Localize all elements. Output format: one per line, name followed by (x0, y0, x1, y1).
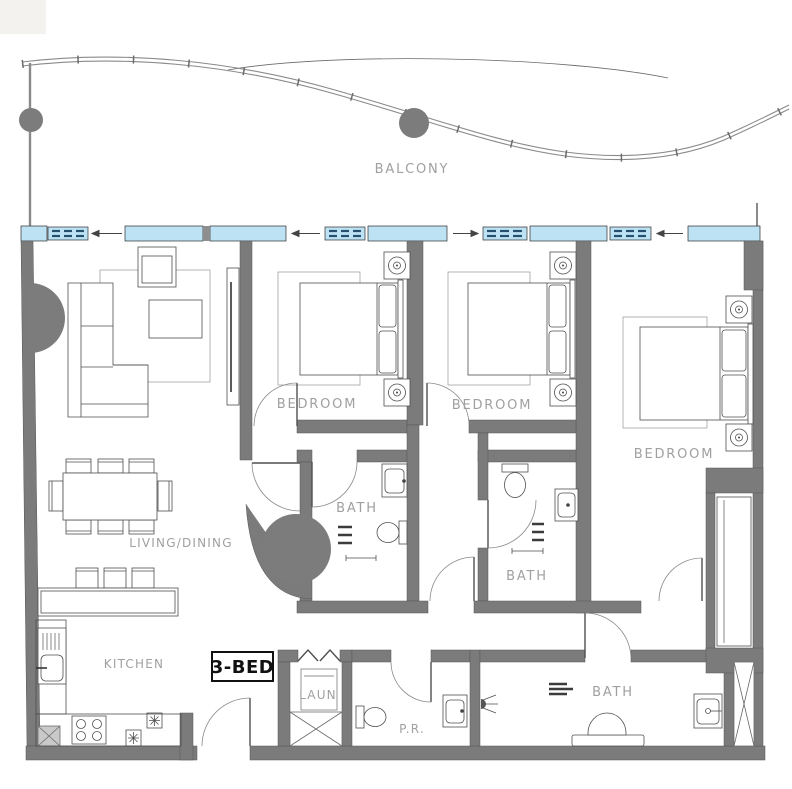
wall-bath1-east (407, 425, 419, 601)
label-bedroom2: BEDROOM (452, 398, 532, 413)
toilet (377, 521, 407, 544)
label-balcony: BALCONY (375, 162, 450, 177)
label-laundry: LAUN (299, 688, 337, 702)
wall-bath3-east (724, 662, 734, 746)
slide-arrow-right (453, 231, 478, 237)
bed (640, 327, 748, 420)
wall-pr-north (352, 650, 391, 662)
slide-arrow-left (292, 231, 320, 237)
balcony-railing-outer (22, 57, 789, 156)
dining-chair (66, 520, 91, 534)
wall-bath3-north (480, 650, 585, 662)
faucet (460, 709, 464, 713)
wall-pr-east (470, 650, 480, 746)
wall-exterior-right-chunk (744, 241, 763, 290)
balcony (19, 57, 789, 226)
label-bedroom1: BEDROOM (277, 397, 357, 412)
unit-label-text: 3-BED (211, 657, 274, 678)
dining-table (63, 473, 157, 520)
wall-bed2-south (469, 420, 576, 433)
label-bath2: BATH (506, 569, 548, 584)
door-bath2 (488, 500, 536, 548)
sliding-panel (483, 227, 527, 240)
label-bedroom3: BEDROOM (634, 447, 714, 462)
dining-chair (49, 481, 63, 511)
bedroom1-furniture (278, 252, 410, 406)
wall-laundry-north (278, 650, 298, 662)
wall-bed3-lobby-east (706, 493, 715, 650)
unit-label: 3-BED (211, 652, 274, 681)
wall-bed1-south (297, 420, 407, 433)
dining-chair (98, 459, 123, 473)
dining-chair (66, 459, 91, 473)
stove (72, 716, 106, 744)
wall-exterior-bottom (250, 746, 765, 760)
wall-exterior-bottom (26, 746, 197, 760)
dining-chair (129, 520, 154, 534)
wall-bed2-bed3 (576, 241, 591, 613)
window-glass (368, 226, 447, 241)
door-bed3-lobby (659, 558, 702, 601)
column-round-hall (261, 514, 331, 584)
wall-kitchen-stub (180, 713, 193, 760)
toilet (502, 464, 528, 498)
towel-rail (549, 684, 573, 694)
window-glass (21, 226, 47, 241)
bathtub (572, 713, 644, 746)
bed3-closet (717, 497, 751, 646)
coffee-table (149, 300, 202, 338)
wall-pr-north (431, 650, 470, 662)
column-half-living (30, 283, 65, 353)
balcony-column-left (19, 108, 43, 132)
faucet (566, 503, 570, 507)
dining-chair (158, 481, 172, 511)
window-glass (688, 226, 760, 241)
shower-marks (338, 527, 352, 543)
wall-hall-north (474, 601, 641, 613)
shower-head (481, 695, 498, 713)
wall-bath2-west (478, 548, 488, 601)
wall-laundry-west (278, 662, 290, 746)
faucet (402, 479, 406, 483)
nightstand-lamp (384, 252, 410, 279)
armchair (138, 247, 176, 287)
headboard (570, 280, 575, 378)
slide-arrow-left (92, 231, 122, 237)
window-glass (125, 226, 203, 241)
wall-laundry-pr (342, 662, 352, 746)
nightstand-lamp (550, 379, 576, 406)
living-room-furniture (68, 247, 239, 417)
bedroom2-furniture (448, 252, 576, 406)
dining-chair (129, 459, 154, 473)
kitchen-sink-cabinet (38, 628, 66, 684)
window-band (21, 226, 760, 241)
sliding-panel (48, 227, 88, 240)
door-entry (202, 698, 250, 746)
nightstand-lamp (550, 252, 576, 279)
door-bath3 (585, 613, 631, 658)
door-corridor-hall (430, 557, 474, 601)
door-living-hall (252, 463, 300, 511)
bed (468, 283, 570, 375)
door-powder-room (391, 662, 431, 702)
shafts (38, 662, 754, 746)
floor-plan-canvas: BALCONY BEDROOM BEDROOM BEDROOM LIVING/D… (0, 0, 792, 789)
corner-shade (0, 0, 46, 34)
towel-rail (346, 555, 376, 561)
door-laundry-bifold (298, 650, 340, 661)
label-powder-room: P.R. (399, 722, 425, 736)
nightstand-lamp (726, 424, 752, 451)
wall-bath2-north (478, 450, 576, 462)
headboard (748, 324, 753, 424)
shower-marks (532, 524, 544, 540)
towel-rail (512, 548, 543, 554)
railing-ticks (22, 59, 789, 158)
nightstand-lamp (726, 296, 752, 323)
sofa (68, 283, 148, 417)
wall-bath1-north (357, 450, 407, 462)
appliance-symbol (147, 713, 162, 728)
wall-bath2-west (478, 433, 488, 500)
window-mullion (203, 226, 210, 241)
wall-living-bed1 (240, 241, 252, 460)
bed (300, 283, 398, 375)
sliding-panel (325, 227, 365, 240)
toilet (356, 706, 386, 728)
headboard (398, 280, 403, 378)
slide-arrow-left (657, 231, 683, 237)
window-glass (530, 226, 607, 241)
wall-laundry-north (340, 650, 352, 662)
nightstand-lamp (384, 379, 410, 406)
appliance-symbol (126, 730, 141, 746)
balcony-guide-curve (228, 59, 668, 78)
label-living-dining: LIVING/DINING (129, 536, 232, 550)
tv-console (227, 268, 239, 405)
sliding-panel (610, 227, 651, 240)
floor-plan: BALCONY BEDROOM BEDROOM BEDROOM LIVING/D… (0, 0, 792, 789)
dining-chair (98, 520, 123, 534)
kitchen-peninsula (38, 588, 178, 616)
wall-bed3-jut-upper (706, 468, 763, 493)
window-glass (210, 226, 286, 241)
label-bath1: BATH (336, 501, 378, 516)
label-kitchen: KITCHEN (104, 657, 164, 671)
label-bath3: BATH (592, 685, 634, 700)
wall-hall-north (297, 601, 428, 613)
balcony-column-center (399, 108, 429, 138)
wall-bath1-north (297, 450, 312, 462)
